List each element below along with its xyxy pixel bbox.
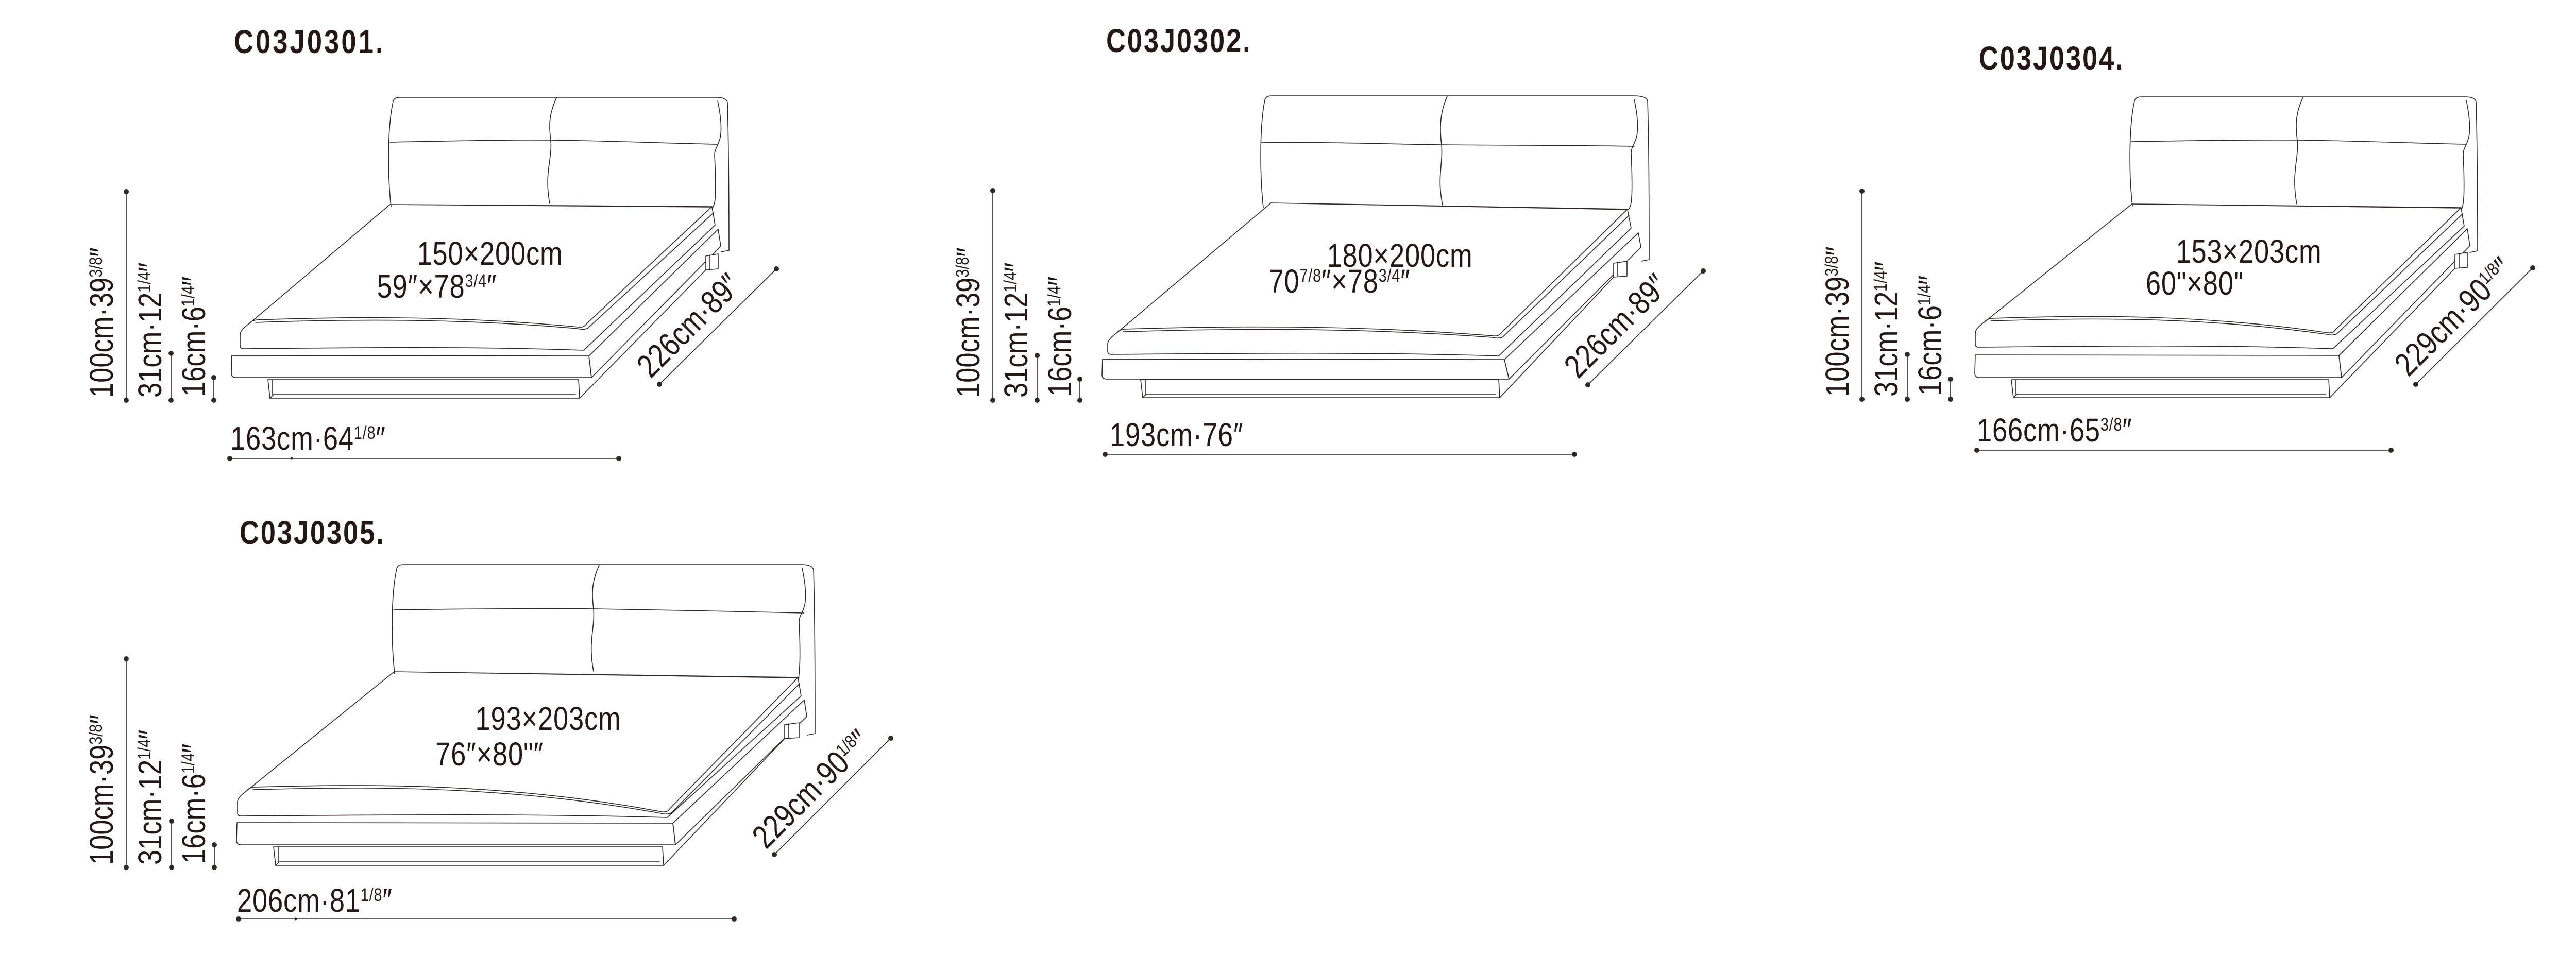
svg-text:C03J0302.: C03J0302. (1106, 23, 1252, 59)
svg-text:153×203cm: 153×203cm (2176, 233, 2321, 270)
svg-text:150×200cm: 150×200cm (417, 235, 563, 272)
svg-text:C03J0304.: C03J0304. (1979, 40, 2125, 77)
svg-text:C03J0305.: C03J0305. (240, 515, 385, 551)
svg-text:193×203cm: 193×203cm (475, 701, 621, 737)
svg-text:193cm·76″: 193cm·76″ (1110, 417, 1243, 453)
svg-text:76″×80"″: 76″×80"″ (435, 736, 544, 773)
svg-text:C03J0301.: C03J0301. (234, 24, 385, 60)
svg-text:60"×80": 60"×80" (2146, 265, 2244, 302)
